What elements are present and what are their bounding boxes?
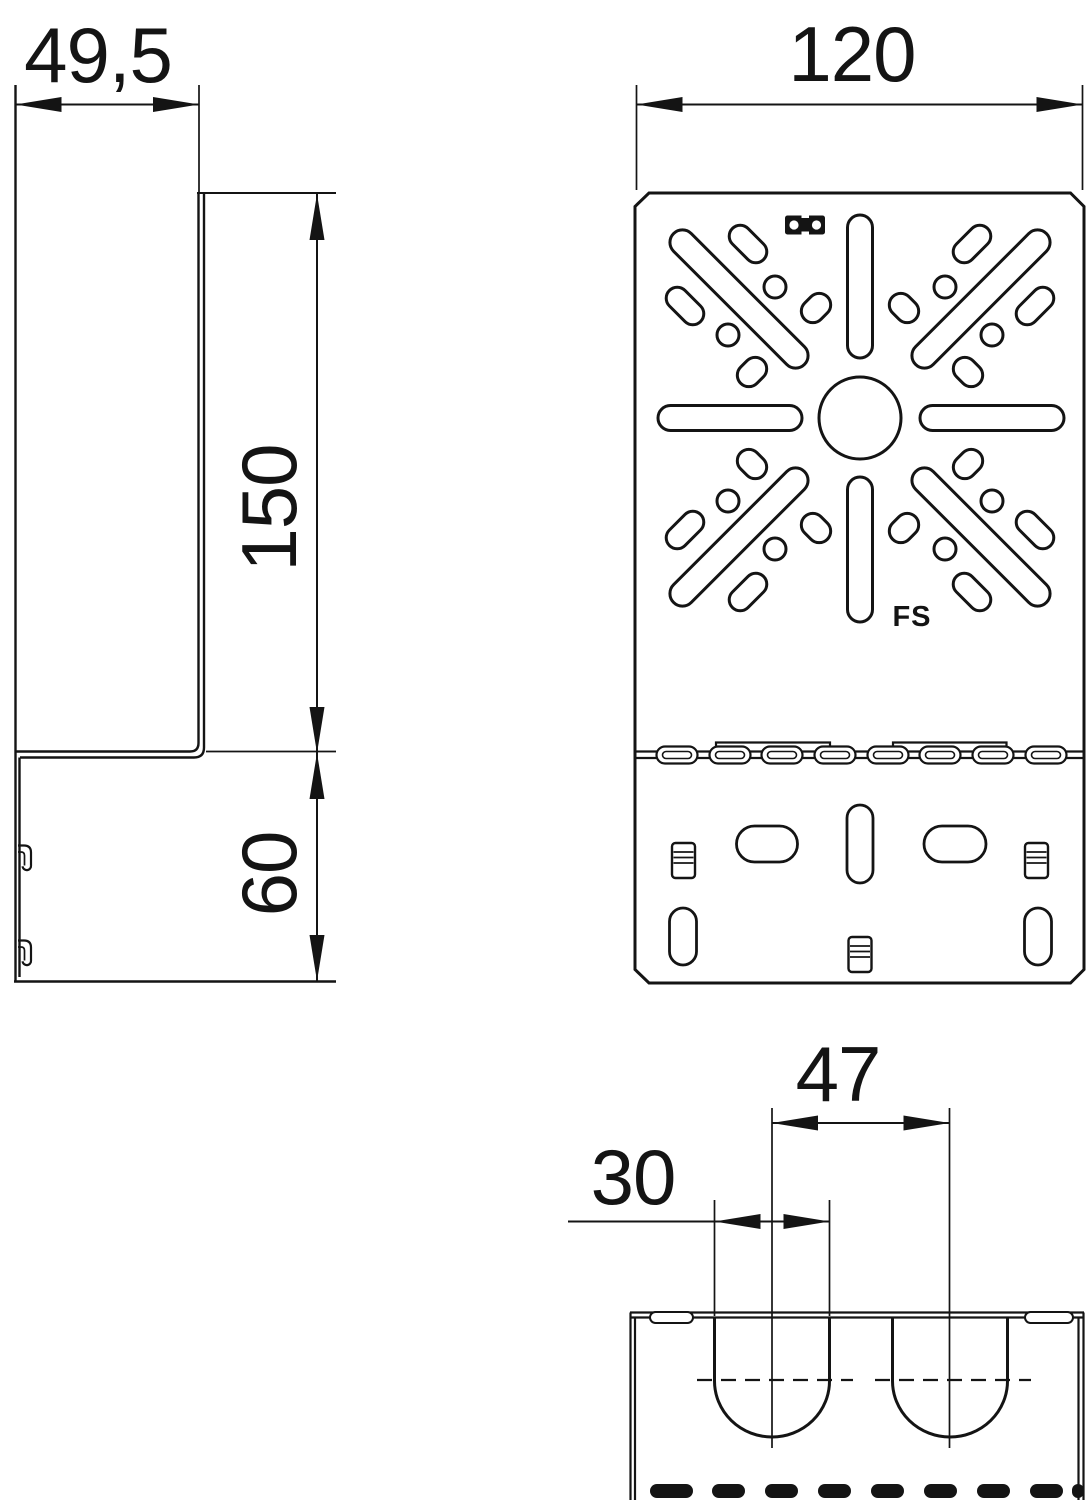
dimension-plate-height-150: 150 [225,194,325,753]
dimension-label-depth: 49,5 [24,11,172,99]
dimension-label-slot-spacing: 47 [796,1030,881,1118]
plate-edge-outer [16,193,199,752]
plate-edge-inner [20,193,204,758]
slot-vertical [1025,908,1052,965]
dimension-label-slot-width: 30 [591,1133,676,1221]
dimension-channel-height-60: 60 [225,753,325,981]
slot-horizontal [924,826,986,862]
tab-notch-bottom [802,232,810,236]
dimension-label-channel-height: 60 [225,832,313,917]
slot-vertical [670,908,697,965]
detail-view: 47 30 [568,1030,1084,1500]
lower-flange-features [670,805,1052,972]
tab-hole [812,220,821,229]
tab-hole [789,220,798,229]
slot-horizontal [737,826,798,862]
fs-marking: FS [892,601,931,633]
dimension-label-plate-height: 150 [225,444,313,571]
bottom-slot-row [650,1484,1084,1498]
pattern-quadrant-bottom-left [662,445,836,616]
slot-west [658,406,802,431]
pattern-quadrant-bottom-right [885,445,1059,616]
dimension-slot-width-30: 30 [568,1133,830,1316]
crimp-tab [1025,843,1048,878]
crimp-tab [672,843,695,878]
front-view: 120 FS [635,10,1084,983]
tab-notch-top [802,214,810,218]
side-view: 49,5 150 60 [14,11,336,982]
crimp-tab [849,937,872,972]
fixing-tab [785,214,825,236]
dimension-label-width: 120 [788,10,915,98]
dimension-depth-49-5: 49,5 [16,11,200,192]
bracket-drawing-canvas: 49,5 150 60 120 [0,0,1088,1500]
slot-north [848,215,873,358]
slot-south [848,477,873,622]
dimension-slot-spacing-47: 47 [772,1030,950,1131]
starburst-pattern [658,215,1064,622]
edge-slot [650,1312,693,1323]
dimension-width-120: 120 [637,10,1083,190]
slot-east [920,406,1064,431]
pattern-quadrant-top-right [885,221,1059,392]
technical-drawing-page: 49,5 150 60 120 [0,0,1088,1500]
bend-line-row [635,743,1084,764]
center-hole [819,377,901,459]
edge-slot [1025,1312,1073,1323]
slot-vertical-center [847,805,873,883]
pattern-quadrant-top-left [662,221,836,392]
